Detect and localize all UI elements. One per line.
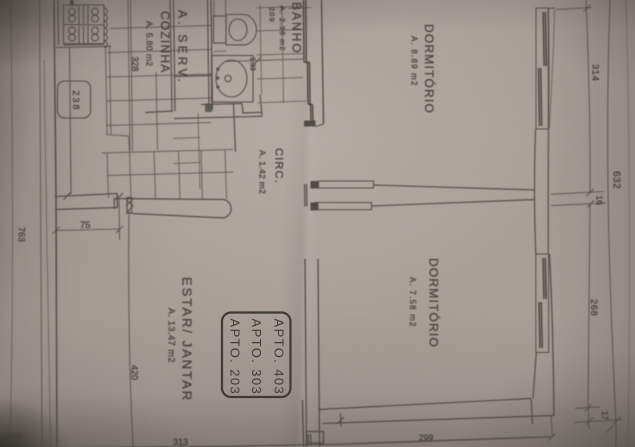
svg-text:632: 632 [611, 171, 622, 189]
svg-text:APTO. 303: APTO. 303 [249, 319, 264, 396]
svg-text:APTO. 403: APTO. 403 [272, 319, 287, 396]
svg-text:A. 5.80 m2: A. 5.80 m2 [145, 21, 155, 67]
svg-text:238: 238 [71, 91, 81, 112]
svg-text:DORMITÓRIO: DORMITÓRIO [422, 24, 437, 114]
svg-text:763: 763 [17, 227, 27, 242]
svg-text:A. 1.42 m2: A. 1.42 m2 [258, 150, 268, 194]
svg-text:A. SERV.: A. SERV. [176, 10, 190, 85]
svg-text:299: 299 [419, 433, 433, 443]
svg-text:16: 16 [595, 196, 605, 206]
svg-text:314: 314 [590, 64, 601, 81]
svg-text:A. 8.89 m2: A. 8.89 m2 [410, 36, 419, 87]
svg-text:268: 268 [588, 299, 599, 316]
svg-text:ESTAR/ JANTAR: ESTAR/ JANTAR [180, 277, 195, 402]
svg-text:COZINHA: COZINHA [158, 11, 172, 73]
svg-text:328: 328 [130, 57, 140, 72]
svg-text:A. 2.38 m2: A. 2.38 m2 [278, 6, 287, 51]
svg-text:313: 313 [173, 437, 188, 447]
svg-text:209: 209 [268, 7, 277, 23]
svg-text:A. 13.47 m2: A. 13.47 m2 [167, 308, 177, 363]
svg-text:A. 7.58 m2: A. 7.58 m2 [408, 277, 417, 328]
svg-text:1.33: 1.33 [249, 57, 256, 71]
svg-text:DORMITÓRIO: DORMITÓRIO [427, 258, 442, 348]
svg-text:17: 17 [600, 411, 609, 420]
svg-text:75: 75 [80, 220, 91, 231]
svg-text:420: 420 [130, 365, 140, 380]
svg-text:CIRC.: CIRC. [273, 148, 285, 184]
svg-text:APTO. 203: APTO. 203 [228, 319, 243, 396]
svg-text:BANHO: BANHO [290, 2, 304, 55]
